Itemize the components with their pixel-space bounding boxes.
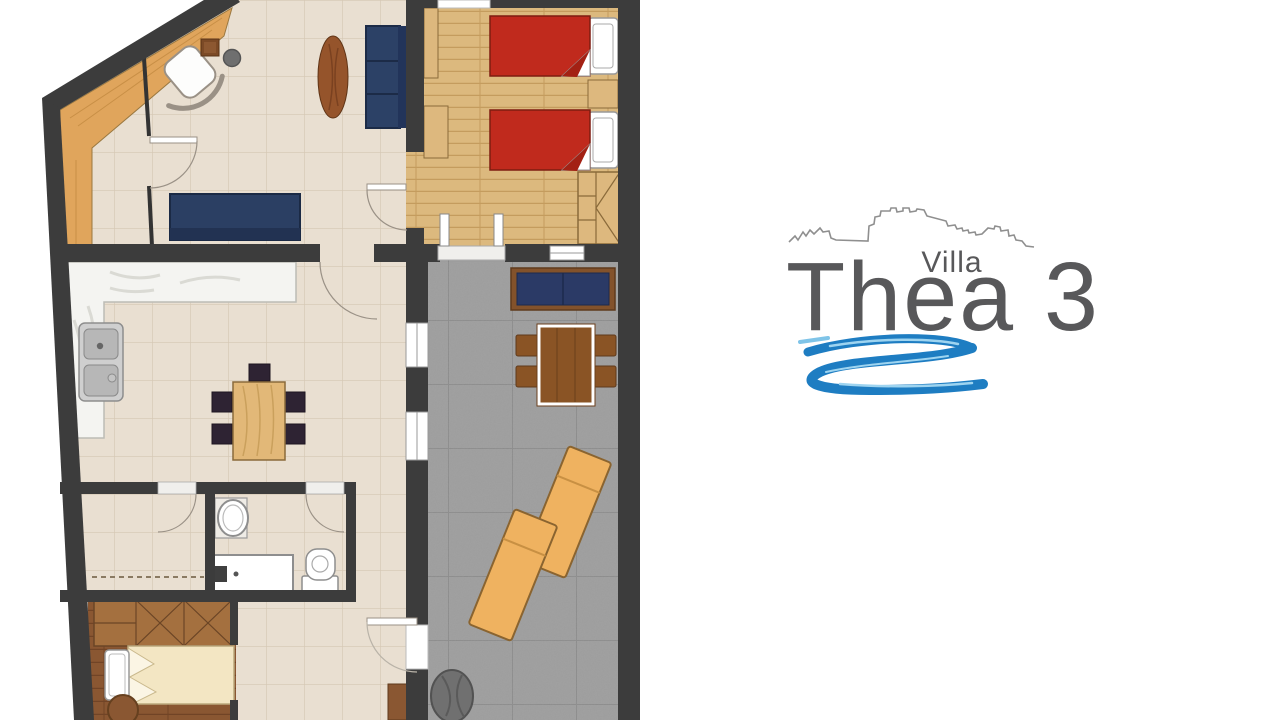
window-bedroom-terrace	[550, 246, 584, 260]
navy-sofa	[366, 26, 407, 128]
logo-title: Thea 3	[786, 242, 1100, 351]
outdoor-bench	[511, 268, 615, 310]
bedroom-stool	[108, 695, 138, 720]
washbasin	[215, 498, 248, 538]
logo: Villa Thea 3	[786, 208, 1100, 390]
wall-living-kitchen	[60, 244, 320, 262]
page: Villa Thea 3	[0, 0, 1280, 720]
wall-living-bedroom	[406, 0, 424, 152]
single-bedroom	[94, 600, 234, 720]
living-door-leaf	[367, 184, 406, 190]
bathtub	[213, 555, 293, 595]
dining-chair	[212, 392, 232, 412]
closet-door-gap	[158, 482, 196, 494]
navy-bench	[170, 194, 300, 240]
wardrobe-twin-bedroom	[578, 172, 620, 244]
window-kitchen-terrace-2	[406, 412, 428, 460]
nightstand	[588, 80, 618, 108]
outdoor-table	[539, 326, 593, 404]
double-door-threshold	[438, 246, 505, 260]
wall-shelf	[424, 106, 448, 158]
terrace-door-leaf	[367, 618, 417, 625]
wall-bathrow-bottom	[60, 590, 356, 602]
window-kitchen-terrace-1	[406, 323, 428, 367]
outdoor-chair	[516, 366, 538, 387]
toilet	[302, 549, 338, 593]
red-bed-2	[490, 110, 618, 171]
bathroom-door-gap	[306, 482, 344, 494]
door-opening-top	[438, 0, 490, 8]
wall-bedroom-single-right	[230, 700, 238, 720]
dining-chair	[212, 424, 232, 444]
double-door-leaf	[494, 214, 503, 246]
wall-bathroom-right	[346, 482, 356, 602]
kitchen-sink	[79, 323, 123, 401]
outdoor-chair	[594, 366, 616, 387]
wall-shelf	[424, 8, 438, 78]
oval-coffee-table	[318, 36, 348, 118]
wall-right-outer	[618, 0, 640, 720]
entry-door-leaf	[150, 137, 197, 143]
floor-plan-canvas: Villa Thea 3	[0, 0, 1280, 720]
hall-cabinet	[388, 684, 408, 720]
side-table	[201, 39, 219, 56]
dining-chair	[285, 392, 305, 412]
wall-cross-block	[374, 244, 440, 262]
wall-bathroom-left	[205, 482, 215, 602]
outdoor-chair	[516, 335, 538, 356]
wardrobe-single-bedroom	[94, 600, 232, 646]
outdoor-chair	[594, 335, 616, 356]
stool	[224, 50, 241, 67]
wall-bedroom-single-right	[230, 602, 238, 645]
dining-chair	[249, 364, 270, 381]
red-bed-1	[490, 16, 618, 77]
wall-living-bedroom-nub	[406, 228, 424, 246]
dining-chair	[285, 424, 305, 444]
double-door-leaf	[440, 214, 449, 246]
planter	[431, 670, 473, 720]
